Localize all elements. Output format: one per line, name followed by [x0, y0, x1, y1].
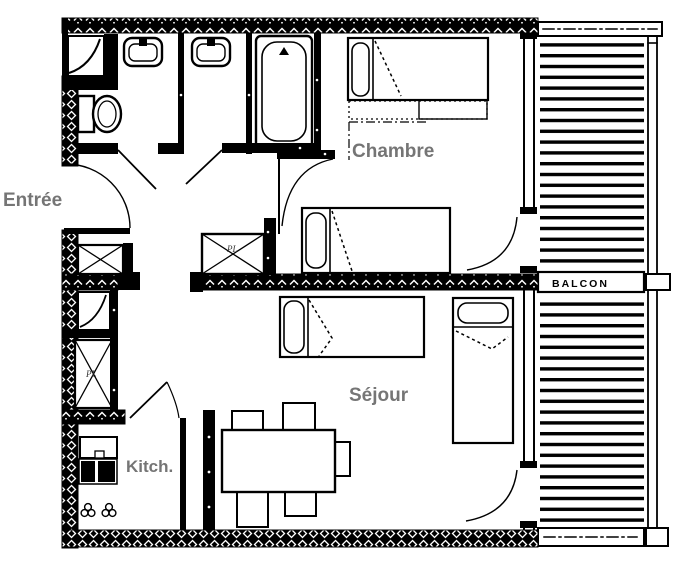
washbasin	[124, 38, 162, 66]
wall-hatch	[62, 410, 125, 424]
chair	[285, 492, 316, 516]
bed	[348, 38, 488, 100]
window-cap	[520, 266, 537, 273]
wall-stub	[123, 243, 133, 274]
bed	[453, 298, 513, 443]
wall	[180, 418, 186, 530]
chair	[237, 492, 268, 527]
balcony-deck-lower	[540, 296, 644, 526]
bathtub	[256, 36, 312, 148]
toilet	[78, 96, 121, 132]
top-wall	[62, 18, 538, 33]
bottom-wall	[62, 530, 538, 547]
wall-stub	[158, 143, 178, 154]
room-label-entree: Entrée	[3, 190, 62, 211]
balcony-label: BALCON	[552, 278, 609, 290]
faucet	[207, 39, 215, 46]
wall	[246, 33, 252, 154]
wall	[203, 410, 215, 530]
room-label-kitchen: Kitch.	[126, 457, 173, 476]
window-cap	[520, 461, 537, 468]
chair	[283, 403, 315, 430]
faucet	[139, 39, 147, 46]
balcony-deck-upper	[540, 38, 644, 268]
dining-table	[222, 430, 335, 492]
stove	[98, 461, 115, 482]
floor-plan-page: Entrée Chambre Séjour Kitch. BALCON PL P…	[0, 0, 680, 581]
wall	[62, 330, 118, 338]
wall	[62, 76, 118, 90]
pillow	[458, 303, 508, 323]
pillow	[284, 301, 304, 353]
floor-plan: Entrée Chambre Séjour Kitch. BALCON PL P…	[0, 0, 680, 581]
chair	[232, 411, 263, 430]
bed	[280, 297, 424, 357]
wall	[110, 290, 118, 414]
pillow	[352, 43, 369, 96]
chair	[334, 442, 350, 476]
wall-stub	[78, 143, 118, 154]
balcony-bottom-cap	[646, 528, 668, 546]
window-cap	[520, 207, 537, 214]
divider-wall-left	[62, 274, 118, 290]
closet-label: PL	[85, 369, 97, 379]
stove	[81, 461, 95, 482]
door-leaf	[277, 150, 335, 159]
room-label-sejour: Séjour	[349, 385, 409, 406]
bed	[302, 208, 450, 273]
balcony-band-cap	[646, 274, 670, 290]
wall-stub	[264, 218, 276, 275]
room-label-chambre: Chambre	[352, 141, 434, 162]
washbasin	[192, 38, 230, 66]
door-leaf	[64, 228, 130, 234]
pillow	[306, 213, 326, 268]
wall	[178, 33, 184, 154]
wall	[314, 33, 321, 154]
closet	[78, 243, 133, 274]
kitchen-sink-tab	[95, 451, 104, 458]
divider-wall-right	[203, 274, 538, 290]
closet-label: PL	[226, 244, 238, 254]
